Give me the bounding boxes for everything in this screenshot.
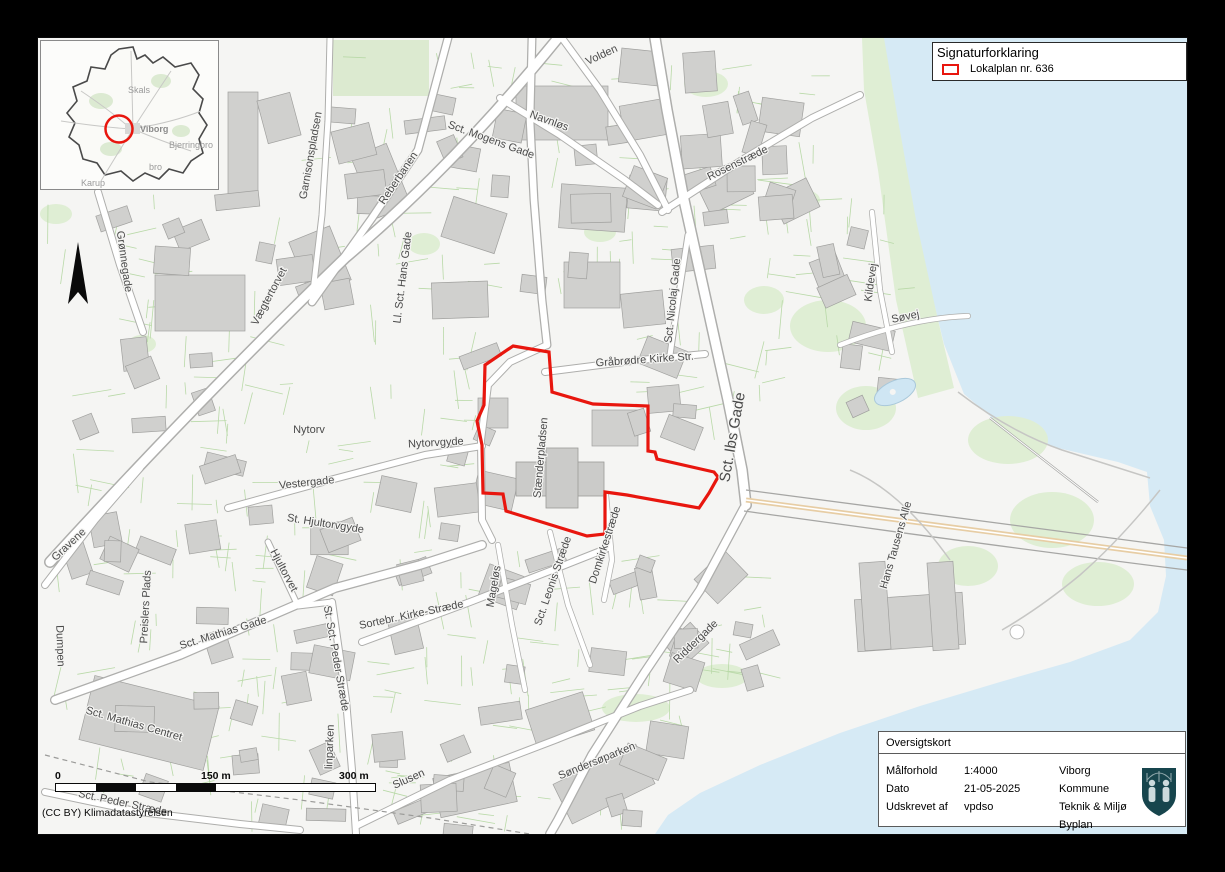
info-box-title: Oversigtskort	[879, 732, 1185, 754]
scale-bar-segment	[96, 784, 136, 791]
inset-place-label: Skals	[128, 85, 151, 95]
lokalplan-swatch-icon	[942, 64, 959, 75]
info-field-values: 1:4000 21-05-2025 vpdso	[964, 762, 1059, 834]
attribution-text: (CC BY) Klimadatastyrelsen	[42, 807, 173, 819]
scale-bar-graphic	[55, 783, 376, 792]
street-label: Nytorv	[293, 424, 325, 436]
street-label: linparken	[323, 724, 337, 769]
scale-tick: 300 m	[339, 770, 369, 782]
field-label: Målforhold	[886, 762, 964, 780]
legend-box: Signaturforklaring Lokalplan nr. 636	[932, 42, 1187, 81]
printed-by-value: vpdso	[964, 798, 1059, 816]
municipality-inset-map: SkalsViborgBjerringbrobroKarup	[40, 40, 219, 190]
scale-tick: 0	[55, 770, 61, 782]
legend-title: Signaturforklaring	[933, 43, 1186, 60]
date-value: 21-05-2025	[964, 780, 1059, 798]
inset-place-label: bro	[149, 162, 162, 172]
info-field-labels: Målforhold Dato Udskrevet af	[886, 762, 964, 834]
info-box-body: Målforhold Dato Udskrevet af 1:4000 21-0…	[879, 754, 1185, 838]
field-label: Udskrevet af	[886, 798, 964, 816]
scale-bar-segment	[176, 784, 216, 791]
scale-bar: 0 150 m 300 m	[55, 770, 376, 792]
map-canvas: VoldenNavnløsSct. Mogens GadeReberbanenG…	[38, 38, 1187, 834]
inset-place-label: Karup	[81, 178, 105, 188]
street-label: Dumpen	[53, 625, 66, 667]
park-pond-circle	[1010, 625, 1024, 639]
scale-bar-labels: 0 150 m 300 m	[55, 770, 376, 783]
org-line: Viborg Kommune	[1059, 762, 1139, 798]
plan-document-page: VoldenNavnløsSct. Mogens GadeReberbanenG…	[0, 0, 1225, 872]
viborg-coat-of-arms-icon	[1139, 764, 1179, 820]
scale-value: 1:4000	[964, 762, 1059, 780]
scale-tick: 150 m	[201, 770, 231, 782]
inset-place-label: Viborg	[140, 124, 168, 134]
org-line: Teknik & Miljø	[1059, 798, 1139, 816]
org-line: Byplan	[1059, 816, 1139, 834]
field-label: Dato	[886, 780, 964, 798]
organization-block: Viborg Kommune Teknik & Miljø Byplan	[1059, 762, 1139, 834]
legend-item: Lokalplan nr. 636	[933, 60, 1186, 80]
legend-item-label: Lokalplan nr. 636	[970, 63, 1054, 75]
inset-place-label: Bjerringbro	[169, 140, 213, 150]
map-info-box: Oversigtskort Målforhold Dato Udskrevet …	[878, 731, 1186, 827]
